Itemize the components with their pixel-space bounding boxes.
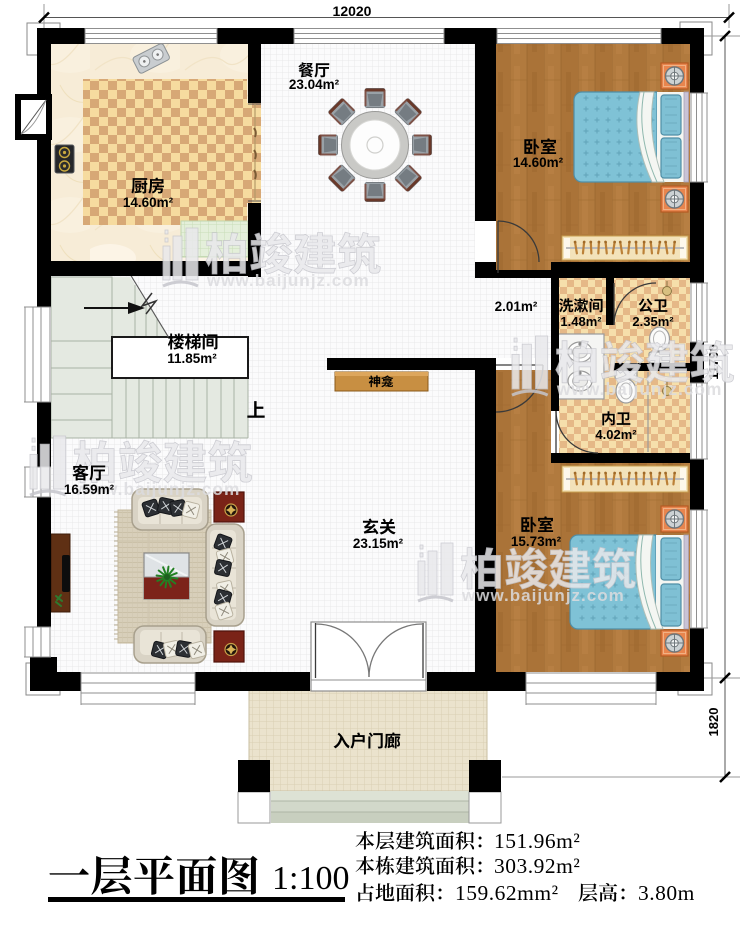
svg-text:14.60m²: 14.60m² (513, 155, 564, 170)
svg-text:23.04m²: 23.04m² (289, 77, 340, 92)
svg-text:1:100: 1:100 (272, 860, 349, 897)
svg-text:23.15m²: 23.15m² (353, 536, 404, 551)
svg-text:303.92m²: 303.92m² (494, 854, 580, 878)
svg-text:11.85m²: 11.85m² (167, 351, 217, 366)
svg-text:16.59m²: 16.59m² (64, 482, 115, 497)
svg-text:www.baijunjz.com: www.baijunjz.com (206, 271, 370, 290)
svg-text:www.baijunjz.com: www.baijunjz.com (556, 379, 723, 399)
svg-text:159.62mm²: 159.62mm² (455, 881, 559, 905)
svg-text:www.baijunjz.com: www.baijunjz.com (461, 586, 625, 605)
svg-text:3.80m: 3.80m (638, 881, 695, 905)
svg-text:12020: 12020 (333, 3, 372, 19)
svg-text:15.73m²: 15.73m² (511, 534, 562, 549)
svg-text:4.02m²: 4.02m² (595, 427, 637, 442)
svg-text:1820: 1820 (706, 708, 721, 737)
svg-text:2.01m²: 2.01m² (495, 299, 538, 314)
svg-text:2.35m²: 2.35m² (632, 314, 674, 329)
svg-text:151.96m²: 151.96m² (494, 829, 580, 853)
svg-text:14.60m²: 14.60m² (123, 195, 174, 210)
svg-text:1.48m²: 1.48m² (560, 314, 602, 329)
